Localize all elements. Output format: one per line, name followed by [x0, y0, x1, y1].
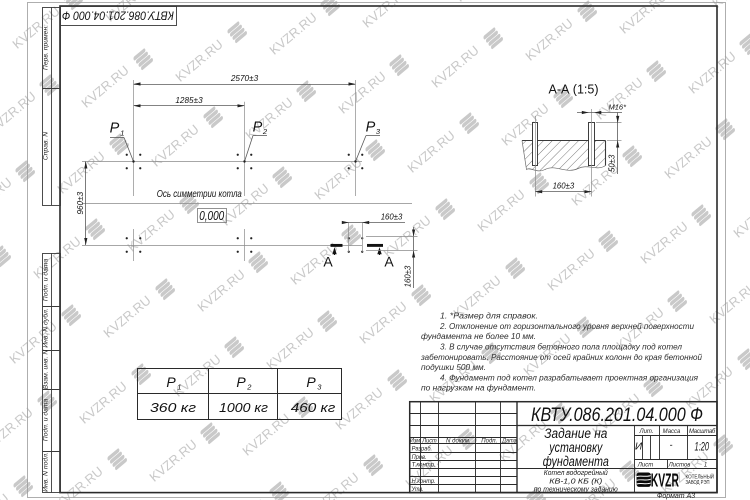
svg-text:460 кг: 460 кг — [291, 401, 336, 415]
svg-text:Ось симметрии котла: Ось симметрии котла — [157, 188, 242, 200]
svg-text:4. Фундамент под котел разраб: 4. Фундамент под котел разрабатывает про… — [440, 373, 699, 382]
svg-text:Взам. инв. N: Взам. инв. N — [43, 350, 50, 390]
svg-text:1000 кг: 1000 кг — [219, 401, 268, 415]
svg-text:Масса: Масса — [663, 429, 681, 435]
svg-text:3: 3 — [376, 127, 381, 136]
svg-text:1:20: 1:20 — [695, 441, 710, 453]
svg-text:1. *Размер для справок.: 1. *Размер для справок. — [440, 312, 538, 321]
svg-text:2570±3: 2570±3 — [230, 74, 259, 83]
svg-text:P: P — [366, 120, 376, 136]
svg-text:Разраб.: Разраб. — [412, 445, 433, 453]
svg-text:1: 1 — [120, 129, 124, 138]
svg-text:360 кг: 360 кг — [150, 401, 196, 415]
svg-text:P: P — [253, 120, 263, 136]
svg-text:160±3: 160±3 — [404, 265, 413, 287]
svg-text:Листов: Листов — [668, 462, 691, 468]
svg-text:160±3: 160±3 — [553, 182, 575, 191]
svg-text:KVZR: KVZR — [651, 471, 679, 492]
svg-text:-: - — [670, 440, 673, 450]
svg-text:Т.контр.: Т.контр. — [412, 462, 436, 469]
svg-text:Изм: Изм — [410, 438, 421, 445]
svg-text:50±3: 50±3 — [608, 154, 617, 172]
svg-text:ЗАВОД РЭП: ЗАВОД РЭП — [686, 480, 710, 486]
svg-text:Подп.: Подп. — [481, 438, 497, 445]
svg-text:Формат А3: Формат А3 — [657, 493, 695, 500]
svg-text:960±3: 960±3 — [76, 191, 85, 214]
svg-text:по техническому заданию: по техническому заданию — [534, 485, 619, 494]
svg-text:160±3: 160±3 — [381, 213, 403, 222]
svg-text:установку: установку — [549, 440, 604, 455]
svg-text:P: P — [166, 374, 176, 390]
svg-text:Н.контр.: Н.контр. — [412, 478, 436, 485]
svg-text:Перв. примен.: Перв. примен. — [43, 25, 50, 70]
svg-text:Пров.: Пров. — [412, 454, 427, 461]
svg-text:Утв.: Утв. — [411, 486, 424, 493]
svg-text:И: И — [635, 442, 643, 453]
svg-text:2. Отклонение от горизонтальн: 2. Отклонение от горизонтального уровня … — [439, 322, 695, 331]
svg-text:Задание на: Задание на — [544, 426, 607, 441]
svg-text:1: 1 — [704, 462, 707, 468]
svg-text:Дата: Дата — [501, 438, 517, 445]
svg-text:3: 3 — [317, 383, 322, 392]
svg-text:фундамента не более 10 мм.: фундамента не более 10 мм. — [421, 332, 536, 341]
svg-text:P: P — [306, 374, 316, 390]
svg-text:P: P — [110, 121, 120, 137]
svg-text:1: 1 — [177, 383, 181, 392]
svg-text:А-А (1:5): А-А (1:5) — [548, 83, 598, 97]
svg-text:2: 2 — [262, 127, 268, 136]
svg-text:КВТУ.086.201.04.000 Ф: КВТУ.086.201.04.000 Ф — [62, 8, 174, 22]
svg-text:М16*: М16* — [608, 103, 627, 112]
svg-text:А: А — [384, 254, 394, 270]
svg-text:2: 2 — [246, 383, 252, 392]
svg-text:P: P — [236, 374, 246, 390]
svg-text:А: А — [323, 254, 333, 270]
svg-text:Инв. N подл.: Инв. N подл. — [42, 452, 50, 492]
svg-text:Подп. и дата: Подп. и дата — [42, 399, 50, 442]
svg-text:1285±3: 1285±3 — [175, 96, 203, 105]
svg-text:Инв. N дубл.: Инв. N дубл. — [42, 308, 50, 347]
svg-text:Лит.: Лит. — [638, 429, 653, 435]
svg-text:фундамента: фундамента — [543, 454, 609, 469]
svg-text:0,000: 0,000 — [199, 209, 224, 223]
svg-text:Лист: Лист — [421, 438, 436, 445]
svg-text:Лист: Лист — [637, 462, 653, 468]
svg-text:Подп. и дата: Подп. и дата — [42, 259, 50, 302]
svg-text:по нагрузкам на фундамент.: по нагрузкам на фундамент. — [421, 384, 536, 393]
svg-text:Справ. N: Справ. N — [43, 132, 50, 161]
svg-text:забетонировать. Расстояние от: забетонировать. Расстояние от осей крайн… — [420, 353, 703, 362]
svg-text:Масштаб: Масштаб — [689, 429, 716, 435]
svg-text:3. В случае отсутствия бетонн: 3. В случае отсутствия бетонного пола пл… — [440, 343, 683, 352]
svg-text:N докум.: N докум. — [446, 438, 471, 445]
svg-text:КВТУ.086.201.04.000 Ф: КВТУ.086.201.04.000 Ф — [531, 405, 703, 426]
svg-text:подушки 500 мм.: подушки 500 мм. — [421, 363, 486, 372]
